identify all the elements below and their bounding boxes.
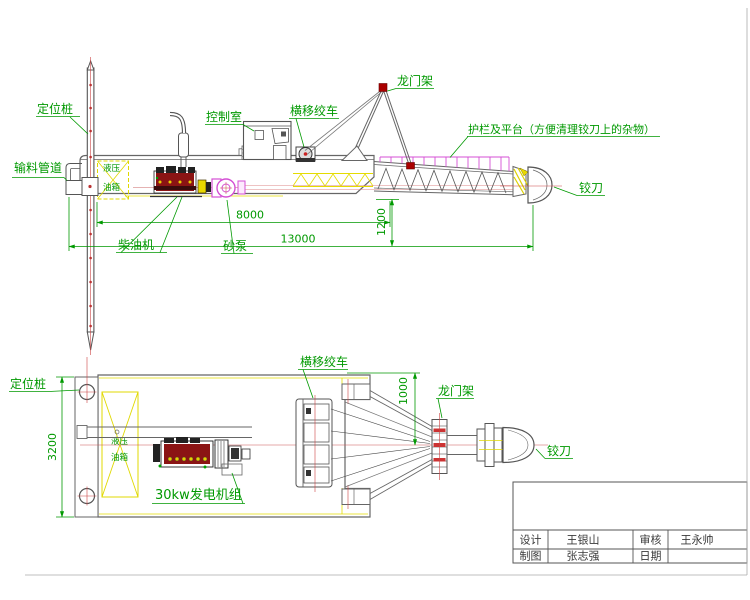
title-review-name: 王永帅 — [681, 533, 714, 547]
label-control-room: 控制室 — [206, 109, 242, 124]
tank-label-line1: 液压 — [103, 163, 121, 174]
label-cutter-side: 铰刀 — [579, 180, 603, 195]
dim-13000: 13000 — [281, 233, 316, 246]
title-review-label: 审核 — [640, 533, 662, 547]
plan-view: 液压 油箱 — [9, 354, 573, 517]
dim-1200: 1200 — [375, 208, 388, 236]
tank-label-line2: 油箱 — [103, 182, 121, 193]
dim-1000: 1000 — [397, 377, 410, 405]
label-feed-pipe: 输料管道 — [14, 160, 62, 175]
label-spud-plan: 定位桩 — [10, 376, 46, 391]
control-room — [242, 122, 291, 160]
gantry-mounts-plan — [342, 379, 370, 509]
label-winch-side: 横移绞车 — [290, 103, 338, 118]
label-platform-note: 护栏及平台（方便清理铰刀上的杂物） — [468, 122, 655, 136]
title-date-label: 日期 — [640, 550, 662, 563]
title-design-name: 王银山 — [567, 533, 600, 547]
title-design-label: 设计 — [520, 534, 542, 547]
label-cutter-plan: 铰刀 — [547, 443, 571, 458]
cutter-side — [500, 167, 562, 204]
spud-side — [82, 57, 98, 355]
diesel-engine-side — [150, 166, 202, 197]
dim-8000: 8000 — [236, 209, 264, 222]
label-gantry-plan: 龙门架 — [438, 383, 474, 398]
sand-pump-side — [198, 179, 245, 197]
dim-3200: 3200 — [46, 433, 59, 461]
dredger-drawing-svg: 液压 油箱 — [0, 0, 750, 600]
label-generator: 30kw发电机组 — [155, 487, 242, 503]
traverse-winch-side — [296, 147, 315, 162]
label-spud-side: 定位桩 — [37, 101, 73, 116]
label-sand-pump: 砂泵 — [223, 239, 247, 253]
title-block: 设计 王银山 审核 王永帅 制图 张志强 日期 — [513, 482, 747, 563]
title-draft-name: 张志强 — [567, 550, 600, 563]
label-gantry-side: 龙门架 — [397, 73, 433, 88]
title-draft-label: 制图 — [520, 550, 542, 563]
label-winch-plan: 横移绞车 — [300, 354, 348, 369]
boom-truss — [374, 162, 514, 196]
drawing-canvas: 液压 油箱 — [0, 0, 750, 600]
tank-plan-line2: 油箱 — [111, 452, 129, 463]
side-view: 液压 油箱 — [12, 57, 660, 355]
